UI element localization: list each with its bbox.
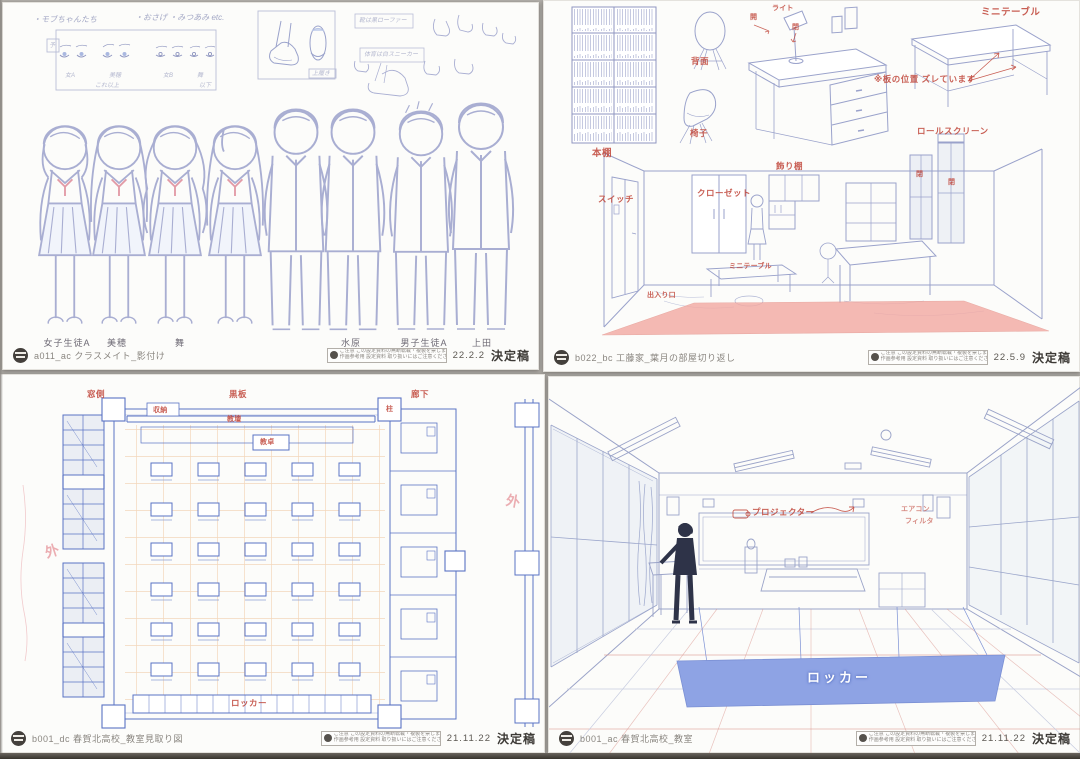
shoe-note: 靴は黒ローファー (359, 18, 407, 24)
usage-notice-box: ご注意 この設定資料の無断転載・複製を禁じます作画参考用 設定資料 取り扱いには… (868, 350, 988, 365)
cut-id-label: b001_dc 春賀北高校_教室見取り図 (32, 732, 183, 745)
handwritten-note: ・モブちゃんたち (33, 16, 97, 24)
label-mini-table-2: ミニテーブル (729, 263, 772, 270)
eye-label: 舞 (197, 73, 203, 79)
classroom-drawing (549, 377, 1080, 754)
label-platform: 教壇 (227, 416, 241, 423)
cut-id-label: b022_bc 工藤家_葉月の部屋切り返し (575, 351, 736, 364)
label-roll-screen: ロールスクリーン (917, 127, 989, 136)
sheet-footer: b001_dc 春賀北高校_教室見取り図 ご注意 この設定資料の無断転載・複製を… (11, 729, 536, 747)
label-chair: 椅子 (690, 129, 708, 138)
sheet-footer: b022_bc 工藤家_葉月の部屋切り返し ご注意 この設定資料の無断転載・複製… (554, 348, 1071, 366)
notice-logo-icon (330, 351, 338, 359)
eye-label: 女A (65, 73, 75, 79)
cut-id-label: b001_ac 春賀北高校_教室 (580, 732, 693, 745)
classmates-drawing (3, 3, 540, 371)
notice-text: ご注意 この設定資料の無断転載・複製を禁じます作画参考用 設定資料 取り扱いには… (340, 349, 447, 361)
label-board-note: ※板の位置 ズレています (874, 75, 976, 84)
label-aircon-note: エアコン (901, 506, 930, 513)
eye-label: 女B (163, 73, 173, 79)
notice-logo-icon (324, 734, 332, 742)
sheet-date: 21.11.22 (982, 733, 1026, 744)
notice-logo-icon (859, 734, 867, 742)
eye-label: 美穂 (109, 73, 121, 79)
notice-text: ご注意 この設定資料の無断転載・複製を禁じます作画参考用 設定資料 取り扱いには… (869, 732, 976, 744)
sheet-date: 22.5.9 (994, 352, 1026, 363)
label-filter-note: フィルタ (905, 518, 934, 525)
label-lamp-closed: 閉 (792, 24, 799, 31)
label-closet: クローゼット (697, 189, 751, 198)
sheet-footer: a011_ac クラスメイト_影付け ご注意 この設定資料の無断転載・複製を禁じ… (13, 346, 530, 364)
indoor-shoes-tag: 上履き (312, 71, 330, 77)
sheet-date: 22.2.2 (453, 350, 485, 361)
notice-logo-icon (871, 353, 879, 361)
label-storage: 収納 (153, 407, 167, 414)
label-teacher-desk: 教卓 (260, 439, 274, 446)
sheet-classroom-perspective: プロジェクター エアコン フィルタ ロッカー b001_ac 春賀北高校_教室 … (548, 376, 1080, 753)
sheet-room-layout: 本棚 背面 椅子 開 ライト 閉 ミニテーブル ※板の位置 ズレています ロール… (543, 0, 1080, 372)
final-draft-stamp: 決定稿 (1032, 730, 1071, 747)
notice-text: ご注意 この設定資料の無断転載・複製を禁じます作画参考用 設定資料 取り扱いには… (881, 351, 988, 363)
label-projector: プロジェクター (752, 508, 815, 517)
sheet-date: 21.11.22 (447, 733, 491, 744)
label-entrance: 出入り口 (647, 292, 676, 299)
room-drawing (544, 1, 1080, 373)
floorplan-drawing (1, 375, 546, 754)
usage-notice-box: ご注意 この設定資料の無断転載・複製を禁じます作画参考用 設定資料 取り扱いには… (321, 731, 441, 746)
label-corridor: 廊下 (411, 390, 429, 399)
photo-left-edge (0, 0, 3, 759)
label-back-view: 背面 (691, 57, 709, 66)
usage-notice-box: ご注意 この設定資料の無断転載・複製を禁じます作画参考用 設定資料 取り扱いには… (327, 348, 447, 363)
studio-logo-icon (13, 348, 28, 363)
studio-logo-icon (11, 731, 26, 746)
sheet-footer: b001_ac 春賀北高校_教室 ご注意 この設定資料の無断転載・複製を禁じます… (559, 729, 1071, 747)
final-draft-stamp: 決定稿 (1032, 349, 1071, 366)
label-light: ライト (772, 5, 794, 12)
eye-box-tag: 予 (49, 43, 55, 49)
label-window-closed-1: 閉 (916, 171, 923, 178)
label-switch: スイッチ (598, 195, 634, 204)
label-display-shelf: 飾り棚 (776, 162, 803, 171)
sheet-classroom-floorplan: 窓側 黒板 廊下 収納 教壇 教卓 柱 外 外 ロッカー b001_dc 春賀北… (0, 374, 545, 753)
settei-sheets-photo: ・モブちゃんたち ・おさげ ・みつあみ etc. 予 女A 美穂 女B 舞 これ… (0, 0, 1080, 759)
cut-id-label: a011_ac クラスメイト_影付け (34, 349, 165, 362)
label-lamp-open: 開 (750, 14, 757, 21)
eye-caption: これ以上 (95, 83, 119, 89)
sheet-classmates-lineup: ・モブちゃんたち ・おさげ ・みつあみ etc. 予 女A 美穂 女B 舞 これ… (2, 2, 539, 370)
final-draft-stamp: 決定稿 (497, 730, 536, 747)
label-bookshelf: 本棚 (592, 149, 612, 159)
handwritten-note: ・おさげ ・みつあみ etc. (135, 14, 224, 22)
studio-logo-icon (554, 350, 569, 365)
usage-notice-box: ご注意 この設定資料の無断転載・複製を禁じます作画参考用 設定資料 取り扱いには… (856, 731, 976, 746)
final-draft-stamp: 決定稿 (491, 347, 530, 364)
notice-text: ご注意 この設定資料の無断転載・複製を禁じます作画参考用 設定資料 取り扱いには… (334, 732, 441, 744)
photo-bottom-edge (0, 753, 1080, 759)
studio-logo-icon (559, 731, 574, 746)
label-locker-row: ロッカー (231, 699, 267, 708)
label-locker: ロッカー (807, 667, 871, 686)
label-mini-table: ミニテーブル (981, 8, 1040, 18)
eye-caption: 以下 (199, 83, 211, 89)
shoe-note: 体育は白スニーカー (364, 52, 418, 58)
label-window-side: 窓側 (87, 390, 105, 399)
label-blackboard: 黒板 (229, 390, 247, 399)
label-pillar: 柱 (386, 406, 393, 413)
label-window-closed-2: 閉 (948, 179, 955, 186)
